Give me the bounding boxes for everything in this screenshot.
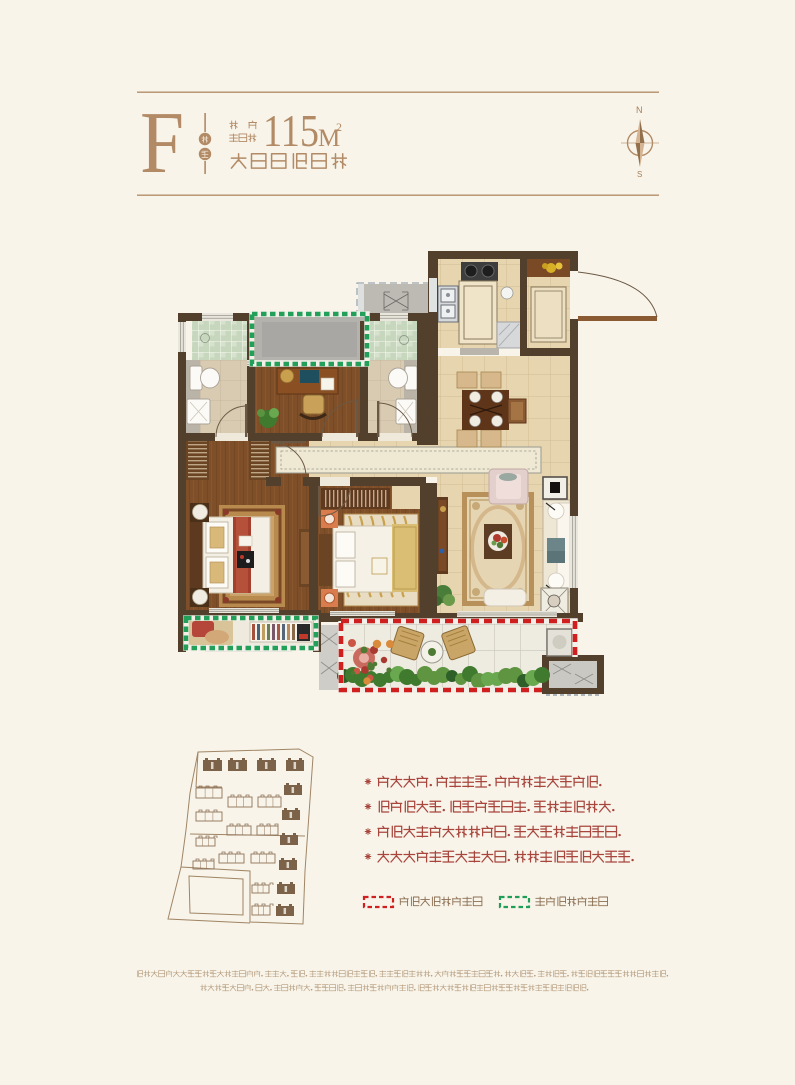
svg-text:S: S bbox=[637, 170, 642, 179]
svg-text:F: F bbox=[140, 94, 184, 192]
svg-text:N: N bbox=[636, 105, 643, 115]
svg-text:2: 2 bbox=[336, 120, 342, 134]
svg-text:115: 115 bbox=[263, 107, 319, 157]
